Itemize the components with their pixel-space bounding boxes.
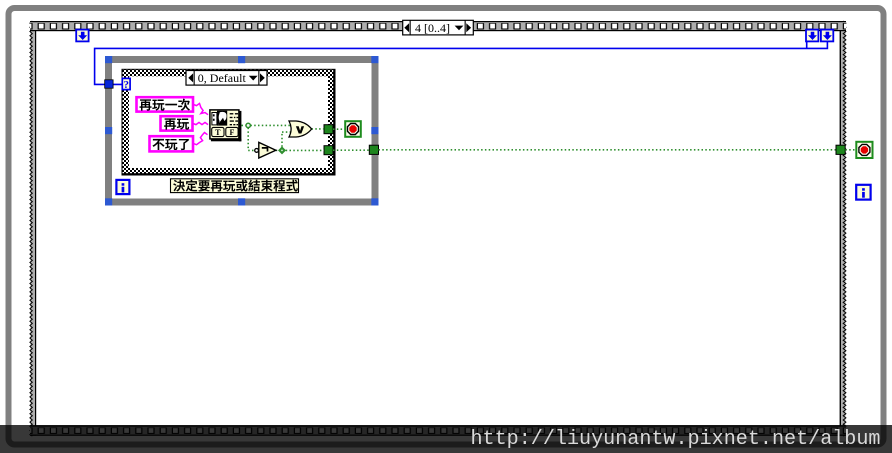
svg-text:F: F [229, 128, 234, 137]
svg-text:4 [0..4]: 4 [0..4] [415, 21, 450, 35]
svg-text:?: ? [123, 79, 129, 91]
svg-text:http://liuyunantw.pixnet.net/a: http://liuyunantw.pixnet.net/album [471, 428, 881, 451]
svg-text:T: T [215, 128, 221, 137]
svg-text:0, Default: 0, Default [198, 71, 247, 85]
